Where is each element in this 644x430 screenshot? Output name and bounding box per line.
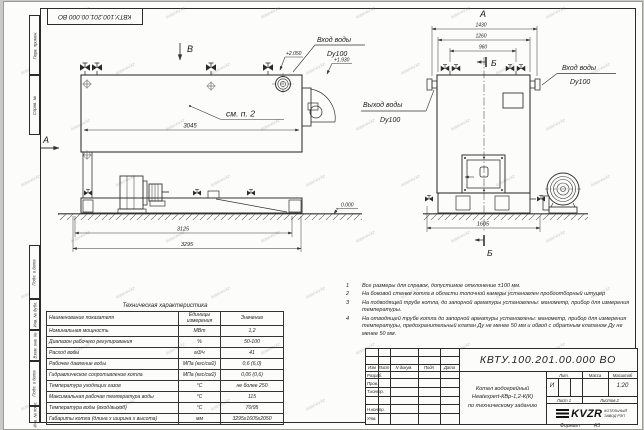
title-block: Изм Лист N докум. Подп Дата Разраб. Пров… — [365, 348, 638, 425]
inlet-leader-front — [542, 74, 557, 86]
rev-header-list: Лист — [378, 365, 390, 370]
margin-box-podp-data-2: Подп. и дата — [29, 361, 40, 406]
flue-flange — [272, 73, 294, 95]
lit-value: И — [546, 383, 558, 389]
elev-arrow-2 — [327, 64, 332, 75]
kvzr-logo-text: KVZR — [571, 408, 602, 420]
outlet-flange — [427, 79, 432, 90]
valve-icon — [80, 63, 90, 71]
survey-mark-icon — [206, 81, 215, 90]
tech-table-title: Техническая характеристика — [46, 303, 284, 309]
tech-table: Наименование показателя Единицы измерени… — [46, 311, 284, 425]
tech-header-value: Значение — [221, 312, 284, 326]
view-label-a-front: А — [479, 9, 486, 19]
rev-header-izm: Изм — [366, 365, 378, 370]
scale-header: Масштаб — [608, 373, 637, 378]
inlet-label-side: Вход воды — [317, 36, 352, 44]
margin-box-inv-podl: Инв. № подл. — [29, 406, 40, 423]
valve-icon — [506, 65, 515, 72]
furnace-door — [462, 155, 505, 193]
table-row: Температура воды (вход/выход)°С70/95 — [47, 403, 284, 414]
drain-valve-icon — [247, 189, 255, 195]
table-row: Номинальная мощностьМВт1,2 — [47, 326, 284, 337]
valve-icon — [92, 63, 102, 71]
inlet-pipe — [530, 81, 535, 88]
ground-hatch — [58, 214, 362, 220]
scale-value: 1:20 — [608, 383, 637, 389]
table-row: Гидравлическое сопротивление котлаМПа (к… — [47, 370, 284, 381]
inlet-dn-front: Dy100 — [570, 79, 590, 86]
drawing-sheet: kotel-kv.kzkotel-kv.kzkotel-kv.kzkotel-k… — [0, 0, 644, 430]
view-label-b: В — [187, 44, 193, 54]
sign-row-nkontr: Н.контр. — [367, 407, 385, 412]
dim-text-3045: 3045 — [183, 124, 197, 130]
sign-row-utv: Утв. — [367, 416, 377, 421]
sign-row-tkontr: Т.контр. — [367, 389, 384, 394]
rev-header-docnum: N докум. — [390, 365, 418, 370]
outlet-label: Выход воды — [363, 101, 403, 109]
ground-hatch — [423, 214, 588, 220]
valve-icon — [263, 63, 273, 71]
company-logo-row: KVZR КОТЕЛЬНЫЙ ЗАВОД РЭП — [546, 403, 637, 424]
side-view — [41, 43, 365, 252]
dim-text-1260: 1260 — [475, 34, 486, 40]
table-row: Габариты котла (длина х ширина х высота)… — [47, 414, 284, 425]
see-note-callout: см. п. 2 — [226, 109, 255, 119]
tech-characteristics: Техническая характеристика Наименование … — [46, 303, 284, 425]
note-item: 2На боковой стенке котла в области топоч… — [346, 291, 636, 298]
notes-list: 1Все размеры для справок, допустимое отк… — [346, 283, 636, 339]
margin-box-vzam-inv: Взам. инв. № — [29, 330, 40, 361]
sign-row-prov: Пров. — [367, 381, 378, 386]
dim-text-1430: 1430 — [475, 23, 486, 29]
dim-text-3295: 3295 — [181, 242, 194, 248]
drain-valve-icon — [84, 189, 92, 195]
note-item: 4На отводящей трубе котла до запорной ар… — [346, 316, 636, 338]
inlet-label-front: Вход воды — [562, 64, 597, 72]
top-corner-stamp: КВТУ.100.201.00.000 ВО — [47, 8, 143, 25]
sign-row-razrab: Разраб. — [367, 373, 382, 378]
base-rail — [81, 198, 302, 213]
outlet-pipe — [432, 81, 437, 88]
sheet-cell: Лист 1 — [546, 398, 582, 403]
base-foot-right — [289, 200, 301, 212]
valve-icon — [452, 65, 461, 72]
base-box — [208, 191, 219, 198]
title-doc-number: КВТУ.100.201.00.000 ВО — [459, 349, 637, 371]
table-row: Температура уходящих газов°Сне более 250 — [47, 381, 284, 392]
drain-valve-icon — [193, 189, 201, 195]
section-label-b-top: Б — [491, 58, 497, 68]
format-label: ФорматА3 — [560, 423, 614, 429]
inlet-flange — [535, 79, 540, 90]
valve-icon — [206, 63, 216, 71]
margin-box-sprav-no: Справ. № — [29, 75, 40, 135]
dim-text-1605: 1605 — [477, 222, 490, 228]
inspection-hatch — [503, 93, 523, 108]
dim-text-960: 960 — [479, 45, 488, 51]
table-row: Расход водым3/ч41 — [47, 348, 284, 359]
sheets-cell: Листов 2 — [582, 398, 637, 403]
kvzr-logo-icon — [556, 409, 569, 419]
product-name: Котел водогрейный Heatexpert-КВр-1,2-К(К… — [459, 371, 546, 424]
tech-header-row: Наименование показателя Единицы измерени… — [47, 312, 284, 326]
base-foot-left — [83, 200, 93, 212]
rev-header-data: Дата — [440, 365, 459, 370]
tech-header-units: Единицы измерения — [179, 312, 221, 326]
dim-text-3125: 3125 — [177, 227, 190, 233]
lit-header: Лит. — [546, 373, 582, 378]
outlet-leader — [426, 90, 434, 111]
top-stamp-docnumber: КВТУ.100.201.00.000 ВО — [58, 13, 131, 20]
mass-header: Масса — [582, 373, 608, 378]
elev-arrow-ground — [334, 209, 338, 214]
elev-text-2050: +2.050 — [286, 51, 302, 57]
table-row: Максимальная рабочая температура воды°С1… — [47, 392, 284, 403]
table-row: Диапазон рабочего регулирования%50-100 — [47, 337, 284, 348]
elev-text-1930: +1.930 — [334, 58, 350, 64]
note-item: 1Все размеры для справок, допустимое отк… — [346, 283, 636, 290]
outlet-dn: Dy100 — [380, 117, 400, 124]
blower-fan — [543, 173, 581, 213]
side-door — [302, 88, 335, 126]
boiler-body-side — [81, 75, 302, 152]
section-label-b-bottom: Б — [487, 248, 493, 258]
company-name: КОТЕЛЬНЫЙ ЗАВОД РЭП — [604, 409, 627, 418]
inlet-dn-side: Dy100 — [327, 51, 347, 58]
base-brace — [216, 199, 287, 212]
elev-text-0000: 0.000 — [341, 203, 354, 209]
tech-header-name: Наименование показателя — [47, 312, 179, 326]
valve-icon — [517, 65, 526, 72]
elev-arrow-1 — [280, 57, 285, 70]
callout-leader — [190, 106, 221, 120]
inlet-leader-side — [293, 45, 315, 72]
front-view — [361, 26, 616, 246]
valve-icon — [441, 65, 450, 72]
margin-box-podp-data-1: Подп. и дата — [29, 245, 40, 299]
survey-mark-icon — [82, 79, 91, 88]
view-label-a-side: А — [42, 135, 49, 145]
margin-box-inv-dubl: Инв. № дубл. — [29, 299, 40, 330]
burner-fan — [118, 176, 169, 213]
drain-valve-icon — [425, 195, 433, 201]
note-item: 3На подводящей трубе котла, до запорной … — [346, 300, 636, 315]
rev-header-podp: Подп — [418, 365, 440, 370]
margin-box-perv-primen: Перв. примен. — [29, 15, 40, 75]
table-row: Рабочее давление водыМПа (кгс/см2)0,6 (6… — [47, 359, 284, 370]
